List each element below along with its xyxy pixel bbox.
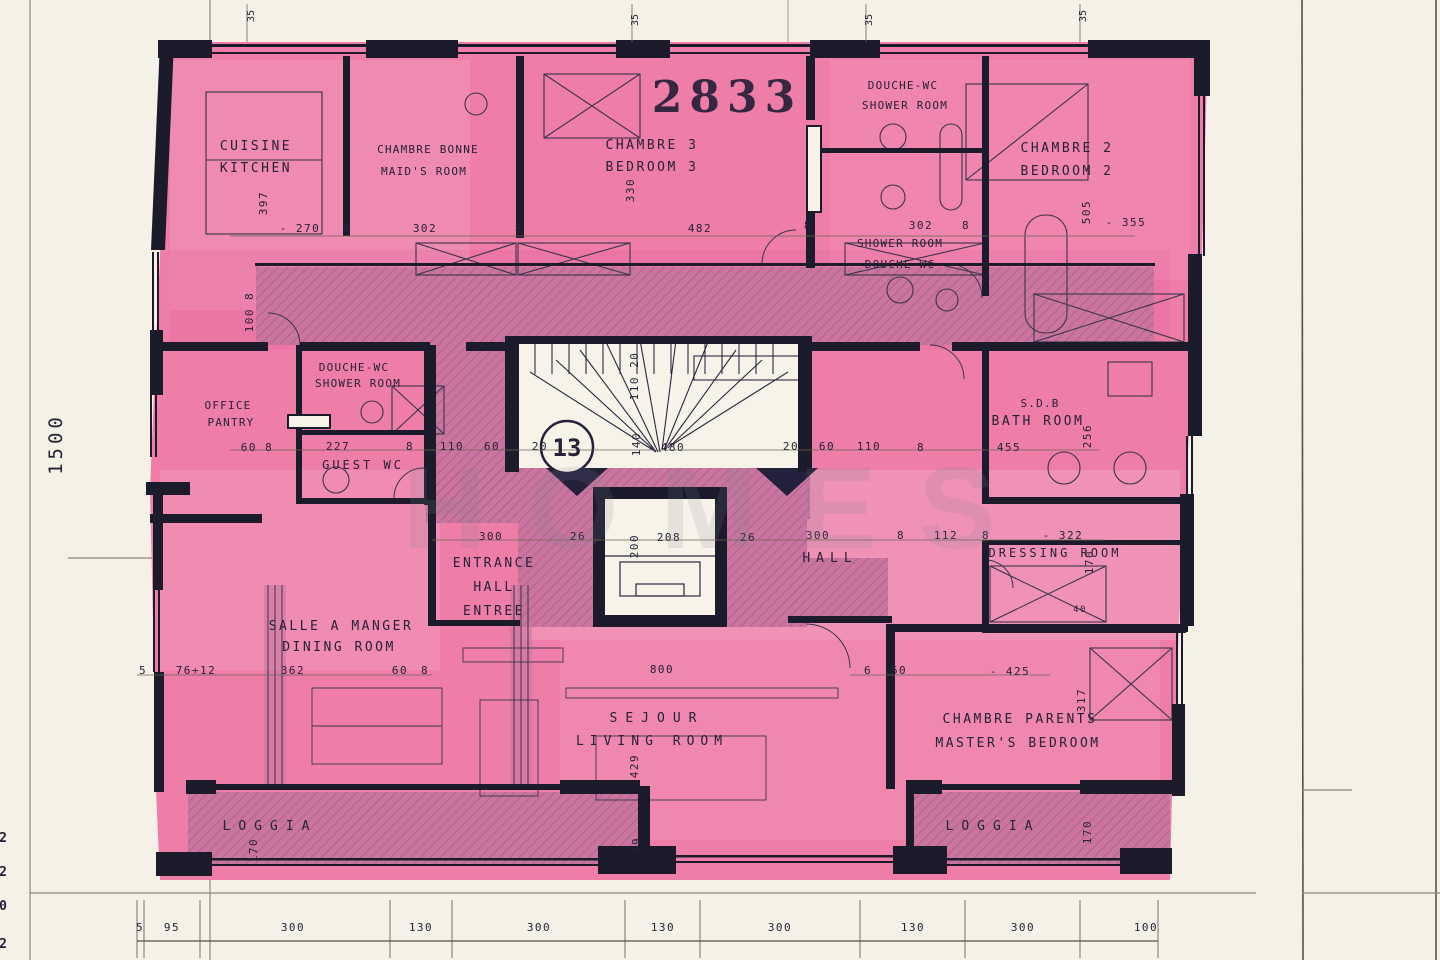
dim-vertical: 505 — [1080, 200, 1093, 224]
dim-vertical: 110 20 — [628, 352, 641, 401]
dim: 8 — [421, 664, 429, 677]
room-label-office: OFFICE — [205, 399, 252, 412]
room-label-bathroom-en: BATH ROOM — [992, 414, 1085, 429]
dim: - 270 — [280, 222, 321, 235]
margin-mark: 2 — [0, 937, 7, 952]
margin-mark: 2 — [0, 831, 7, 846]
dim-vertical: 429 — [628, 754, 641, 778]
dim: 227 — [326, 440, 350, 453]
room-label-dining-fr: SALLE A MANGER — [269, 619, 414, 634]
room-label-shower-mid-fr: DOUCHE-WC — [865, 258, 935, 271]
room-label-master-en: MASTER'S BEDROOM — [935, 736, 1100, 751]
room-label-living-en: LIVING ROOM — [576, 734, 728, 749]
dim: 800 — [650, 663, 674, 676]
dim-vertical: 330 — [624, 178, 637, 202]
room-label-bathroom-fr: S.D.B — [1020, 397, 1059, 410]
room-label-entrance-2: HALL — [473, 580, 514, 595]
dim-vertical: 170 — [1081, 820, 1094, 844]
dim: 100 — [1134, 921, 1158, 934]
dim-vertical: 170 — [1083, 550, 1096, 574]
room-label-master-fr: CHAMBRE PARENTS — [943, 712, 1098, 727]
dim-tick: 35 — [630, 14, 641, 26]
room-label-dining-en: DINING ROOM — [282, 640, 396, 655]
dim: 76+12 — [176, 664, 217, 677]
dim-tick: 35 — [864, 14, 875, 26]
dim-tick: 35 — [246, 10, 257, 22]
room-label-maids-fr: CHAMBRE BONNE — [377, 143, 479, 156]
dim-vertical: 100 8 — [243, 292, 256, 333]
dim: 300 — [281, 921, 305, 934]
dim: - 355 — [1106, 216, 1147, 229]
floor-plan-page: CUISINE KITCHEN CHAMBRE BONNE MAID'S ROO… — [0, 0, 1440, 960]
room-label-bedroom3-fr: CHAMBRE 3 — [606, 138, 699, 153]
dim: 5 — [136, 921, 144, 934]
dim: 60 — [891, 664, 907, 677]
room-label-bedroom2-fr: CHAMBRE 2 — [1021, 141, 1114, 156]
room-label-shower-small-en: SHOWER ROOM — [315, 377, 401, 390]
dim: 6 — [864, 664, 872, 677]
dim: 300 — [1011, 921, 1035, 934]
dim: 362 — [281, 664, 305, 677]
dim: 5 — [139, 664, 147, 677]
room-label-kitchen-en: KITCHEN — [220, 161, 292, 176]
dim: 8 — [343, 222, 351, 235]
dim: - 322 — [1043, 529, 1084, 542]
room-label-guest-wc: GUEST WC — [322, 458, 404, 472]
room-label-kitchen-fr: CUISINE — [220, 139, 292, 154]
dim: 130 — [651, 921, 675, 934]
room-label-shower-mid-en: SHOWER ROOM — [857, 237, 943, 250]
dim-tick: 35 — [1078, 10, 1089, 22]
room-label-living-fr: SEJOUR — [610, 711, 705, 726]
dim-vertical: 397 — [257, 191, 270, 215]
overall-height-dim: 1500 — [45, 413, 67, 475]
room-label-shower-small-fr: DOUCHE-WC — [319, 361, 389, 374]
room-label-loggia-right: LOGGIA — [946, 819, 1041, 834]
dim: 130 — [901, 921, 925, 934]
room-label-entrance-3: ENTREE — [463, 604, 525, 619]
dim: - 425 — [990, 665, 1031, 678]
dim: 8 — [515, 222, 523, 235]
room-label-shower-top-fr: DOUCHE-WC — [868, 79, 938, 92]
dim: 300 — [768, 921, 792, 934]
margin-mark: 0 — [0, 899, 7, 914]
margin-mark: 2 — [0, 865, 7, 880]
dim: 40 — [1073, 605, 1087, 615]
dim: 300 — [527, 921, 551, 934]
plan-number: 2833 — [652, 72, 802, 123]
dim: 60 8 — [241, 441, 274, 454]
room-label-maids-en: MAID'S ROOM — [381, 165, 467, 178]
dim: 8 — [804, 219, 812, 232]
dim: 130 — [409, 921, 433, 934]
room-label-bedroom3-en: BEDROOM 3 — [606, 160, 699, 175]
dim: 95 — [164, 921, 180, 934]
dim-vertical: 256 — [1081, 424, 1094, 448]
dim-vertical: 19 — [630, 837, 643, 853]
room-label-shower-top-en: SHOWER ROOM — [862, 99, 948, 112]
dim: 8 — [962, 219, 970, 232]
floor-plan-svg: CUISINE KITCHEN CHAMBRE BONNE MAID'S ROO… — [0, 0, 1440, 960]
dim-vertical: 317 — [1075, 688, 1088, 712]
dim: 60 — [392, 664, 408, 677]
dim: 302 — [413, 222, 437, 235]
dim: 302 — [909, 219, 933, 232]
room-label-bedroom2-en: BEDROOM 2 — [1021, 164, 1114, 179]
room-label-pantry: PANTRY — [208, 416, 255, 429]
watermark: HOMES — [402, 443, 1037, 573]
room-label-loggia-left: LOGGIA — [223, 819, 318, 834]
dim: 482 — [688, 222, 712, 235]
dim-vertical: 170 — [247, 838, 260, 862]
